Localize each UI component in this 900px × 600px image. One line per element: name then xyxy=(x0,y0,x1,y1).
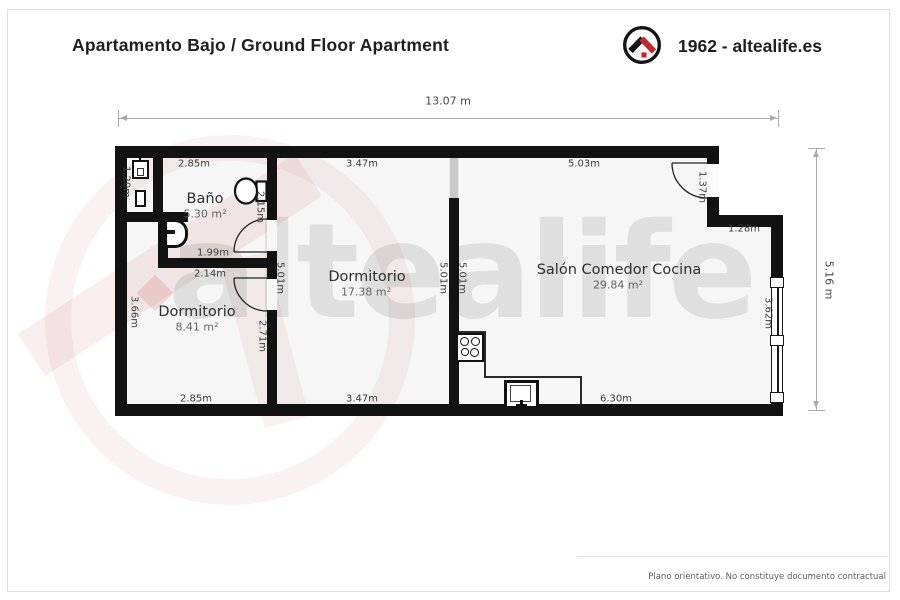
dim-dorm1-top-width: 2.14m xyxy=(194,269,226,280)
dim-top-3: 5.03m xyxy=(568,159,600,170)
wall-a-bottom xyxy=(267,311,277,404)
dim-top-2: 3.47m xyxy=(346,159,378,170)
kitchen-sink-icon xyxy=(504,380,539,409)
dim-window-height: 3.62m xyxy=(763,297,774,329)
arrow-right-icon xyxy=(770,115,777,121)
wall-right-upper xyxy=(771,227,783,278)
room-area-bano: 5.30 m² xyxy=(183,208,226,221)
dim-bottom-3: 6.30m xyxy=(600,394,632,405)
dimline-width xyxy=(118,118,779,119)
wall-a-top xyxy=(267,158,277,219)
room-label-dormitorio2: Dormitorio xyxy=(328,269,405,285)
dim-entry-door: 1.37m xyxy=(697,171,708,203)
dim-bath-width: 1.99m xyxy=(197,248,229,259)
cabinet-icon xyxy=(135,190,146,207)
wall-bath-bottom xyxy=(158,258,277,268)
arrow-down-icon xyxy=(813,401,819,408)
disclaimer-text: Plano orientativo. No constituye documen… xyxy=(648,572,886,582)
room-area-dormitorio1: 8.41 m² xyxy=(175,321,218,334)
room-area-salon: 29.84 m² xyxy=(593,279,643,292)
wall-bottom xyxy=(115,404,783,416)
dim-bath-door-wall: 2.15m xyxy=(255,191,266,223)
stove-icon xyxy=(456,333,484,362)
page-title: Apartamento Bajo / Ground Floor Apartmen… xyxy=(72,35,449,56)
dimline-height xyxy=(816,148,817,410)
dim-entry-step: 1.28m xyxy=(728,224,760,235)
wall-niche-right xyxy=(153,158,163,216)
dim-top-1: 2.85m xyxy=(178,159,210,170)
bath-door-opening xyxy=(267,219,277,252)
room-label-bano: Baño xyxy=(187,191,224,207)
dim-dorm1-right-height: 2.71m xyxy=(257,320,268,352)
counter-edge-front xyxy=(484,376,581,378)
dimline-width-tick-left xyxy=(118,110,119,127)
dim-niche-height: 1.20m xyxy=(121,166,132,198)
dim-dorm2-right-height: 5.01m xyxy=(438,262,449,294)
dimline-height-tick-bottom xyxy=(808,410,825,411)
room-area-dormitorio2: 17.38 m² xyxy=(341,286,391,299)
wall-top xyxy=(115,146,719,158)
dim-salon-left-height: 5.01m xyxy=(457,262,468,294)
floorplan-page: Apartamento Bajo / Ground Floor Apartmen… xyxy=(0,0,900,600)
room-label-dormitorio1: Dormitorio xyxy=(158,304,235,320)
interior-glass-panel xyxy=(449,158,459,198)
arrow-up-icon xyxy=(813,150,819,157)
window-mullion-mid xyxy=(770,335,784,346)
altealife-logo-icon xyxy=(622,25,662,65)
window-mullion-bottom xyxy=(770,392,784,403)
washbasin-icon xyxy=(132,160,149,179)
pipe-line xyxy=(139,148,141,162)
dim-wall-a-height: 5.01m xyxy=(275,262,286,294)
brand-text: 1962 - altealife.es xyxy=(678,36,822,57)
counter-edge-left xyxy=(484,331,486,377)
dimline-height-tick-top xyxy=(808,148,825,149)
dim-bottom-2: 3.47m xyxy=(346,394,378,405)
footer-separator xyxy=(577,556,888,557)
counter-edge-right xyxy=(580,376,582,404)
window-mullion-top xyxy=(770,277,784,288)
dim-bottom-1: 2.85m xyxy=(180,394,212,405)
dimline-width-tick-right xyxy=(778,110,779,127)
wall-b xyxy=(449,198,459,404)
dim-overall-width: 13.07 m xyxy=(425,95,471,108)
arrow-left-icon xyxy=(120,115,127,121)
dim-dorm1-left-height: 3.66m xyxy=(129,296,140,328)
room-label-salon: Salón Comedor Cocina xyxy=(537,262,702,278)
entry-door-opening xyxy=(707,163,719,198)
dim-overall-height: 5.16 m xyxy=(823,261,836,300)
